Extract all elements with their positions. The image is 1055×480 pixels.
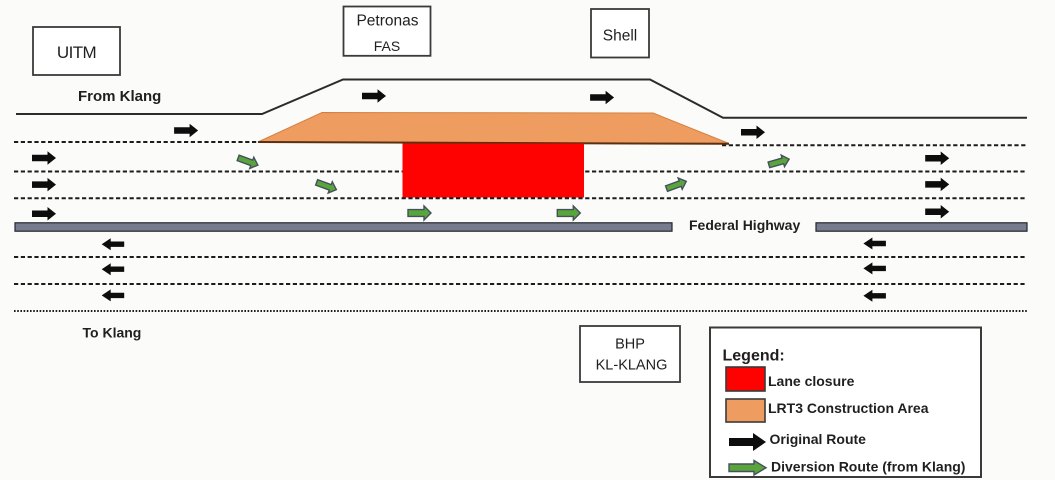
svg-text:UITM: UITM [57,43,96,62]
svg-text:From Klang: From Klang [78,88,161,105]
svg-text:Shell: Shell [603,28,637,45]
svg-text:Diversion Route (from Klang): Diversion Route (from Klang) [771,459,965,475]
svg-text:Lane closure: Lane closure [768,373,855,389]
svg-text:LRT3 Construction Area: LRT3 Construction Area [768,400,929,416]
svg-text:Original Route: Original Route [770,431,867,447]
svg-text:Federal Highway: Federal Highway [689,217,800,233]
svg-text:To Klang: To Klang [83,325,142,341]
svg-text:Legend:: Legend: [723,348,785,365]
